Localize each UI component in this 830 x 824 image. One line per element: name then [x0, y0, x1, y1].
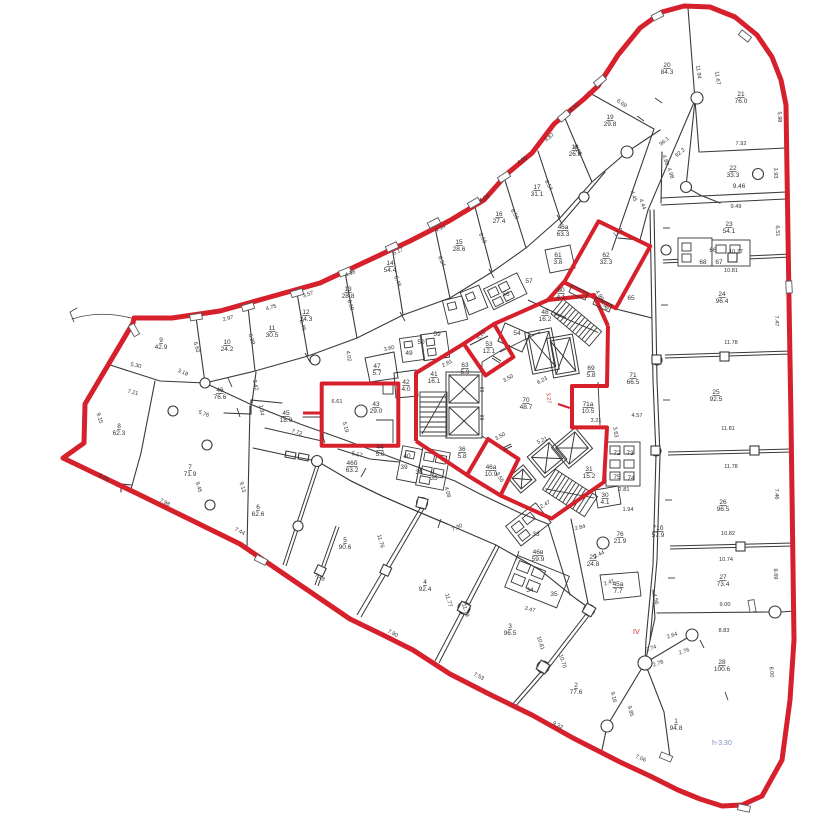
svg-text:42.9: 42.9 — [155, 344, 168, 351]
svg-text:28: 28 — [718, 659, 726, 666]
svg-text:24.8: 24.8 — [587, 561, 600, 568]
svg-text:4.1: 4.1 — [556, 294, 565, 301]
svg-text:62.6: 62.6 — [252, 511, 265, 518]
svg-text:50: 50 — [417, 339, 425, 346]
svg-text:8: 8 — [117, 423, 121, 430]
svg-text:73: 73 — [626, 450, 634, 457]
svg-text:15: 15 — [455, 239, 463, 246]
svg-text:61: 61 — [554, 252, 562, 259]
svg-text:17: 17 — [533, 184, 541, 191]
svg-text:7: 7 — [188, 464, 192, 471]
svg-text:29.0: 29.0 — [370, 408, 383, 415]
svg-text:13: 13 — [344, 286, 352, 293]
svg-text:96.5: 96.5 — [504, 630, 517, 637]
svg-text:5.0: 5.0 — [375, 451, 384, 458]
svg-text:10.5: 10.5 — [582, 408, 595, 415]
svg-text:76.0: 76.0 — [735, 98, 748, 105]
svg-text:76: 76 — [616, 531, 624, 538]
svg-text:6: 6 — [256, 504, 260, 511]
svg-text:7.46: 7.46 — [773, 488, 780, 499]
svg-text:90.6: 90.6 — [339, 544, 352, 551]
svg-text:24.2: 24.2 — [221, 346, 234, 353]
svg-text:9.00: 9.00 — [720, 602, 731, 608]
svg-text:3.21: 3.21 — [591, 418, 602, 424]
svg-text:96.4: 96.4 — [716, 298, 729, 305]
svg-text:7.47: 7.47 — [773, 315, 780, 326]
svg-text:96.5: 96.5 — [717, 506, 730, 513]
svg-text:8.69: 8.69 — [772, 568, 779, 579]
svg-text:66.5: 66.5 — [627, 379, 640, 386]
svg-text:35: 35 — [430, 475, 438, 482]
svg-text:23: 23 — [725, 221, 733, 228]
svg-text:33: 33 — [532, 531, 540, 538]
svg-text:32.3: 32.3 — [600, 259, 613, 266]
svg-text:75: 75 — [613, 474, 621, 481]
svg-text:46а: 46а — [486, 464, 497, 471]
svg-text:48: 48 — [541, 309, 549, 316]
svg-text:28.8: 28.8 — [342, 293, 355, 300]
svg-text:59: 59 — [433, 331, 441, 338]
svg-text:45: 45 — [282, 410, 290, 417]
svg-text:10.74: 10.74 — [719, 557, 733, 563]
svg-text:10.82: 10.82 — [721, 531, 735, 537]
svg-text:46: 46 — [216, 387, 224, 394]
svg-text:15.2: 15.2 — [583, 473, 596, 480]
svg-text:IV: IV — [633, 629, 640, 636]
svg-text:5.7: 5.7 — [372, 370, 381, 377]
svg-text:69: 69 — [587, 365, 595, 372]
svg-text:73.4: 73.4 — [717, 581, 730, 588]
svg-text:30.5: 30.5 — [266, 332, 279, 339]
svg-text:71.9: 71.9 — [184, 471, 197, 478]
svg-text:63: 63 — [461, 362, 469, 369]
svg-text:47: 47 — [373, 363, 381, 370]
svg-text:11.81: 11.81 — [721, 426, 735, 432]
svg-text:11.78: 11.78 — [724, 340, 738, 346]
svg-text:18.9: 18.9 — [280, 417, 293, 424]
svg-text:16.2: 16.2 — [539, 316, 552, 323]
svg-text:54: 54 — [513, 330, 521, 337]
svg-text:22: 22 — [729, 165, 737, 172]
svg-text:92.5: 92.5 — [710, 396, 723, 403]
svg-text:8.00: 8.00 — [768, 666, 775, 677]
svg-text:2: 2 — [574, 682, 578, 689]
svg-text:62.3: 62.3 — [113, 430, 126, 437]
svg-text:1: 1 — [674, 718, 678, 725]
svg-text:5.8: 5.8 — [586, 372, 595, 379]
svg-text:39: 39 — [400, 464, 408, 471]
svg-text:71б: 71б — [653, 524, 664, 532]
svg-text:40: 40 — [403, 453, 411, 460]
svg-text:71а: 71а — [583, 401, 594, 408]
svg-text:70: 70 — [522, 397, 530, 404]
svg-text:59.9: 59.9 — [532, 556, 545, 563]
svg-text:46в: 46в — [533, 549, 544, 556]
svg-text:5.9: 5.9 — [460, 369, 469, 376]
svg-text:34: 34 — [526, 587, 534, 594]
svg-text:5.98: 5.98 — [776, 111, 783, 122]
svg-text:46б: 46б — [347, 459, 358, 467]
svg-text:42: 42 — [402, 379, 410, 386]
svg-text:28.6: 28.6 — [453, 246, 466, 253]
svg-text:33.3: 33.3 — [727, 172, 740, 179]
svg-text:100.6: 100.6 — [714, 666, 731, 673]
svg-text:62: 62 — [602, 252, 610, 259]
svg-text:9.46: 9.46 — [733, 183, 746, 190]
svg-text:1.94: 1.94 — [623, 507, 634, 513]
svg-text:68: 68 — [699, 259, 707, 266]
svg-text:56: 56 — [502, 291, 510, 298]
svg-text:6.61: 6.61 — [332, 399, 343, 405]
svg-text:10: 10 — [223, 339, 231, 346]
svg-text:94.8: 94.8 — [670, 725, 683, 732]
svg-text:9: 9 — [159, 337, 163, 344]
svg-text:41: 41 — [430, 371, 438, 378]
svg-text:19: 19 — [606, 114, 614, 121]
svg-text:4.57: 4.57 — [632, 413, 643, 419]
svg-text:29.8: 29.8 — [604, 121, 617, 128]
svg-text:4.1: 4.1 — [600, 499, 609, 506]
svg-text:24: 24 — [718, 291, 726, 298]
svg-text:10.77: 10.77 — [729, 249, 743, 255]
svg-text:31.1: 31.1 — [531, 191, 544, 198]
svg-text:12.1: 12.1 — [483, 348, 496, 355]
svg-text:77.6: 77.6 — [570, 689, 583, 696]
svg-text:3.93: 3.93 — [772, 167, 779, 178]
svg-text:38: 38 — [415, 469, 423, 476]
svg-text:92.4: 92.4 — [419, 586, 432, 593]
svg-text:21.9: 21.9 — [614, 538, 627, 545]
svg-text:30: 30 — [601, 492, 609, 499]
svg-text:49: 49 — [405, 350, 413, 357]
svg-text:8.83: 8.83 — [719, 628, 730, 634]
svg-text:12: 12 — [302, 309, 310, 316]
svg-text:48.7: 48.7 — [520, 404, 533, 411]
svg-text:60: 60 — [557, 287, 565, 294]
svg-text:27: 27 — [719, 574, 727, 581]
svg-text:9.49: 9.49 — [731, 204, 742, 210]
svg-text:3: 3 — [508, 623, 512, 630]
svg-text:16: 16 — [495, 211, 503, 218]
svg-text:35: 35 — [550, 591, 558, 598]
svg-text:57: 57 — [525, 278, 533, 285]
svg-text:63.2: 63.2 — [346, 467, 359, 474]
svg-text:5.8: 5.8 — [457, 453, 466, 460]
svg-text:10.81: 10.81 — [724, 268, 738, 274]
svg-text:26: 26 — [719, 499, 727, 506]
svg-text:63.3: 63.3 — [557, 231, 570, 238]
svg-text:h-3.30: h-3.30 — [712, 740, 732, 747]
svg-text:57.9: 57.9 — [652, 532, 665, 539]
svg-text:3.27: 3.27 — [545, 392, 552, 403]
svg-text:65: 65 — [627, 295, 635, 302]
svg-text:11: 11 — [269, 325, 276, 332]
svg-text:84.3: 84.3 — [661, 69, 674, 76]
svg-text:7.92: 7.92 — [736, 141, 747, 147]
svg-text:66: 66 — [709, 247, 717, 254]
svg-text:76.6: 76.6 — [214, 394, 227, 401]
svg-text:31: 31 — [585, 466, 593, 473]
svg-text:72: 72 — [613, 450, 621, 457]
svg-text:11.78: 11.78 — [724, 464, 738, 470]
svg-text:4: 4 — [423, 579, 427, 586]
svg-text:54.1: 54.1 — [723, 228, 736, 235]
svg-text:3.8: 3.8 — [553, 259, 562, 266]
svg-text:46а: 46а — [558, 224, 569, 231]
svg-text:6.51: 6.51 — [774, 225, 781, 236]
svg-text:54.4: 54.4 — [384, 267, 397, 274]
svg-text:14: 14 — [386, 260, 394, 267]
svg-text:2.81: 2.81 — [619, 487, 630, 493]
svg-text:27.4: 27.4 — [493, 218, 506, 225]
svg-text:21: 21 — [737, 91, 745, 98]
svg-text:5: 5 — [343, 537, 347, 544]
svg-text:7.7: 7.7 — [613, 588, 622, 595]
svg-text:44: 44 — [376, 444, 384, 451]
svg-text:43: 43 — [372, 401, 380, 408]
svg-text:4.0: 4.0 — [401, 386, 410, 393]
svg-text:67: 67 — [715, 259, 723, 266]
svg-text:71: 71 — [629, 372, 637, 379]
svg-text:36: 36 — [458, 446, 466, 453]
svg-text:74: 74 — [627, 475, 635, 482]
svg-text:20: 20 — [663, 62, 671, 69]
svg-text:16.1: 16.1 — [428, 378, 441, 385]
svg-text:53: 53 — [485, 341, 493, 348]
svg-text:25: 25 — [712, 389, 720, 396]
